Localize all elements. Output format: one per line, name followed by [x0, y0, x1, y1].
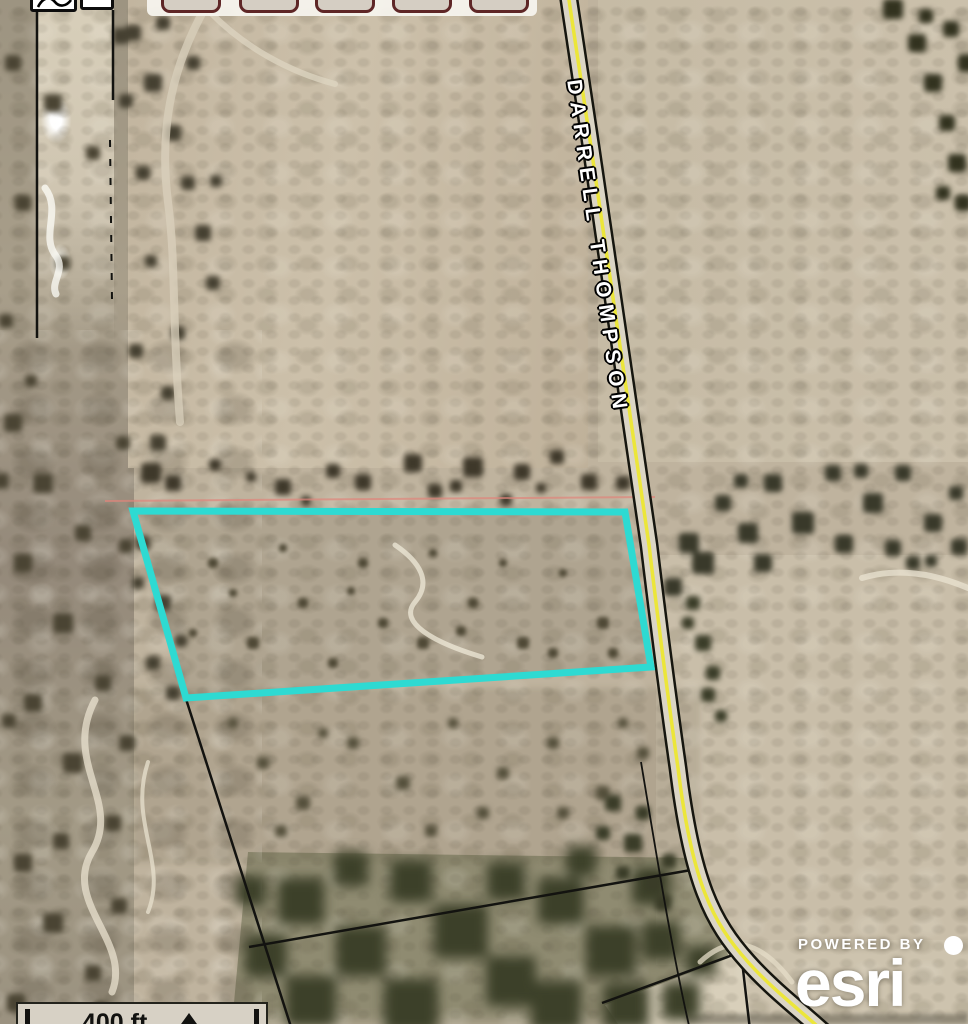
scale-tick-left — [25, 1009, 30, 1024]
esri-attribution: POWERED BY esri — [798, 936, 963, 1014]
scribble-icon — [35, 0, 73, 9]
map-tool-tile[interactable] — [30, 0, 77, 12]
scale-label: 400 ft — [82, 1009, 147, 1024]
scale-tick-right — [254, 1009, 259, 1024]
esri-logo: esri — [795, 953, 963, 1014]
toolbar-button[interactable] — [239, 0, 299, 13]
selected-parcel-outline[interactable] — [133, 511, 651, 698]
survey-line-red — [105, 497, 655, 501]
toolbar-button[interactable] — [161, 0, 221, 13]
toolbar-strip — [147, 0, 537, 16]
toolbar-button[interactable] — [392, 0, 452, 13]
north-arrow-icon — [176, 1013, 202, 1024]
map-tool-tile[interactable] — [80, 0, 114, 10]
map-line-overlay — [0, 0, 968, 1024]
esri-globe-icon — [944, 936, 963, 955]
toolbar-button[interactable] — [469, 0, 529, 13]
toolbar-button[interactable] — [315, 0, 375, 13]
scale-bar: 400 ft — [16, 1002, 268, 1024]
aerial-map-canvas[interactable]: DARRELL THOMPSON 400 ft POWERED BY esri — [0, 0, 968, 1024]
